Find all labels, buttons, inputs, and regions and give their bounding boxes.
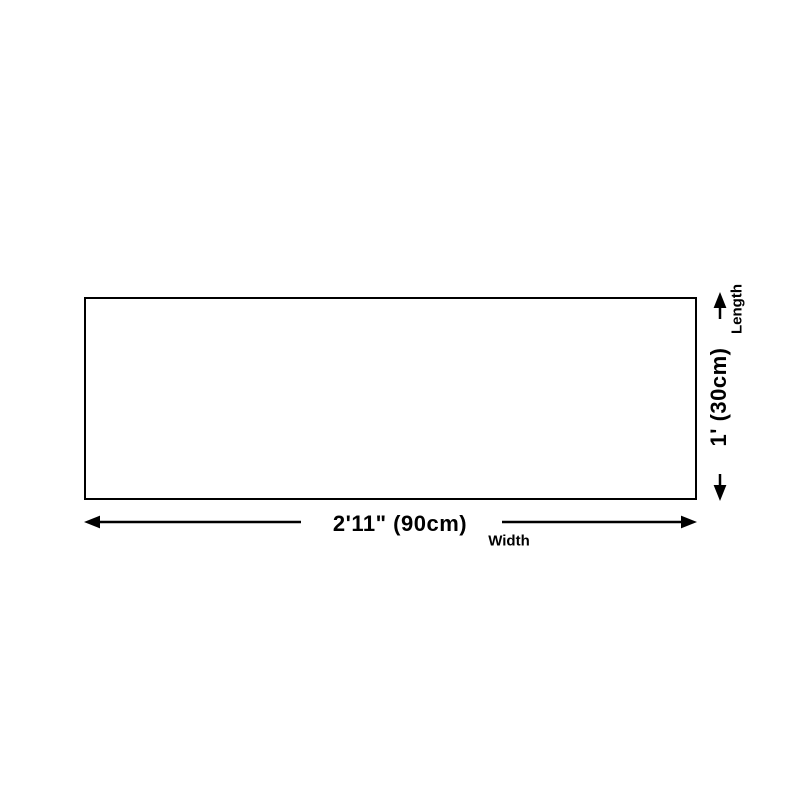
length-dimension-value: 1' (30cm) <box>706 348 732 447</box>
width-axis-label: Width <box>488 533 530 550</box>
length-axis-label: Length <box>729 284 746 334</box>
arrow-left-icon <box>84 516 301 529</box>
arrow-right-icon <box>502 516 697 529</box>
width-dimension-value: 2'11" (90cm) <box>333 511 467 537</box>
arrow-up-icon <box>714 292 727 319</box>
product-outline-rectangle <box>84 297 697 500</box>
dimension-diagram: 2'11" (90cm) Width 1' (30cm) Length <box>0 0 800 800</box>
arrow-down-icon <box>714 474 727 501</box>
